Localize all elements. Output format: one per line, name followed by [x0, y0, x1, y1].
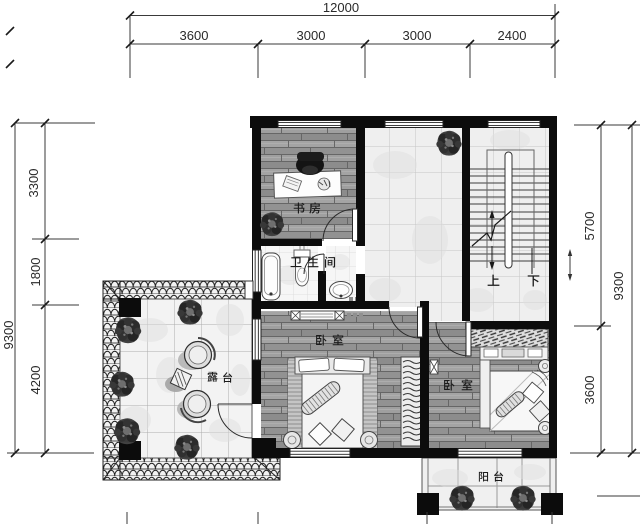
- svg-text:2400: 2400: [498, 28, 527, 43]
- svg-text:3000: 3000: [297, 28, 326, 43]
- svg-text:3300: 3300: [26, 169, 41, 198]
- svg-text:12000: 12000: [323, 0, 359, 15]
- svg-text:3000: 3000: [403, 28, 432, 43]
- svg-text:9300: 9300: [611, 272, 626, 301]
- svg-text:5700: 5700: [582, 212, 597, 241]
- svg-text:3600: 3600: [582, 376, 597, 405]
- svg-text:3600: 3600: [180, 28, 209, 43]
- svg-text:4200: 4200: [28, 366, 43, 395]
- svg-text:9300: 9300: [1, 321, 16, 350]
- svg-text:1800: 1800: [28, 258, 43, 287]
